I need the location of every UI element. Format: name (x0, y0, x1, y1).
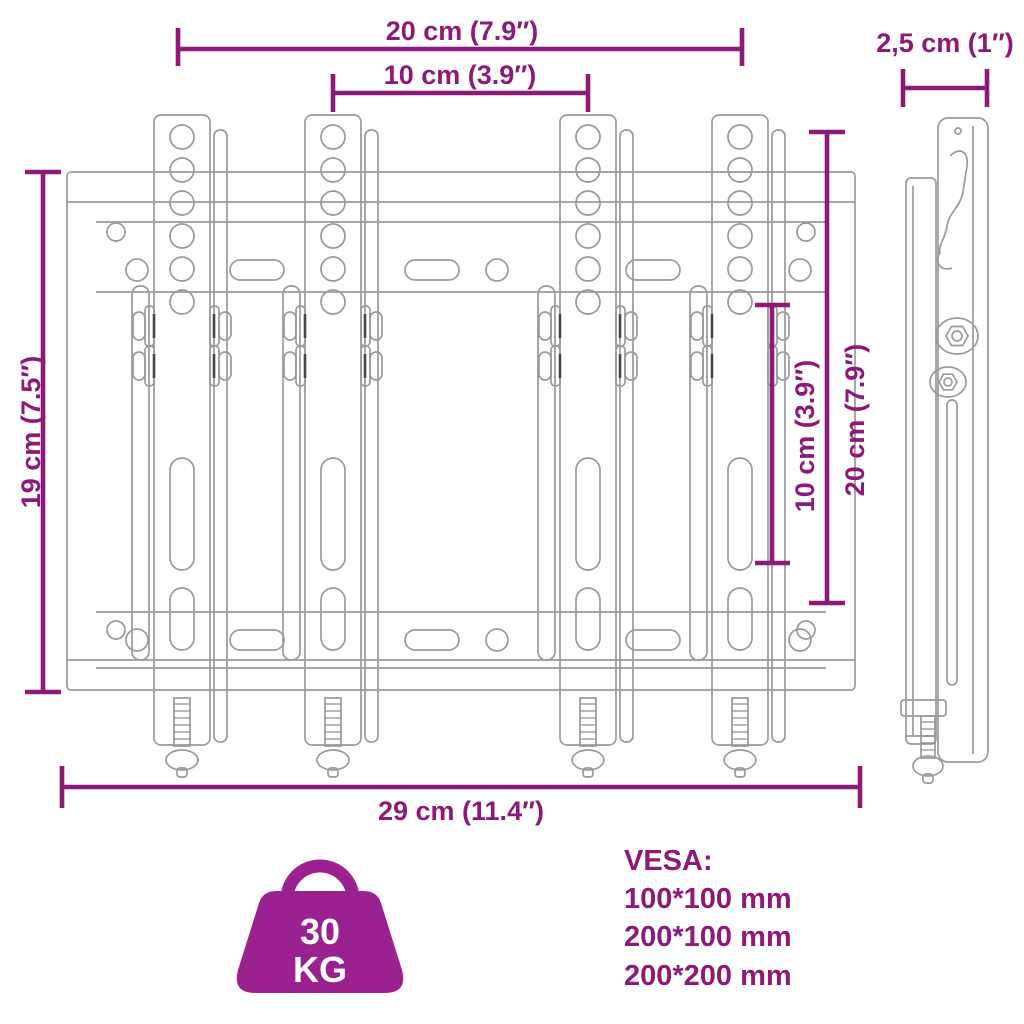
max-weight-badge: 30 KG (237, 866, 403, 993)
vesa-size-3: 200*200 mm (624, 960, 792, 992)
dimension-side-depth-label: 2,5 cm (1″) (876, 28, 1014, 58)
bracket-2 (283, 115, 382, 777)
max-weight-value: 30 (300, 911, 340, 952)
diagram-canvas: 20 cm (7.9″) 10 cm (3.9″) 2,5 cm (1″) 19… (0, 0, 1024, 1024)
dimension-left-height: 19 cm (7.5″) (16, 172, 61, 692)
vesa-size-1: 100*100 mm (624, 883, 792, 915)
side-view (901, 118, 988, 783)
dimension-top-outer-label: 20 cm (7.9″) (386, 16, 539, 46)
dimension-left-height-label: 19 cm (7.5″) (16, 356, 46, 509)
bracket-3 (538, 115, 637, 777)
dimension-bottom-width: 29 cm (11.4″) (62, 766, 860, 826)
dimension-right-inner: 10 cm (3.9″) (755, 305, 820, 563)
vesa-title: VESA: (624, 845, 713, 877)
front-view-brackets (132, 115, 789, 777)
dimension-top-inner-label: 10 cm (3.9″) (384, 60, 537, 90)
bracket-1 (132, 115, 231, 777)
max-weight-unit: KG (293, 949, 347, 990)
front-view-wall-plate (67, 172, 855, 690)
dimension-top-inner: 10 cm (3.9″) (333, 60, 588, 112)
dimension-right-outer-label: 20 cm (7.9″) (840, 344, 870, 497)
product-diagram: 20 cm (7.9″) 10 cm (3.9″) 2,5 cm (1″) 19… (0, 0, 1024, 1024)
dimension-bottom-width-label: 29 cm (11.4″) (378, 796, 544, 826)
dimension-right-inner-label: 10 cm (3.9″) (790, 360, 820, 513)
dimension-top-outer: 20 cm (7.9″) (178, 16, 742, 66)
vesa-compatibility: VESA: 100*100 mm 200*100 mm 200*200 mm (624, 845, 792, 992)
dimension-side-depth: 2,5 cm (1″) (876, 28, 1014, 107)
vesa-size-2: 200*100 mm (624, 921, 792, 953)
